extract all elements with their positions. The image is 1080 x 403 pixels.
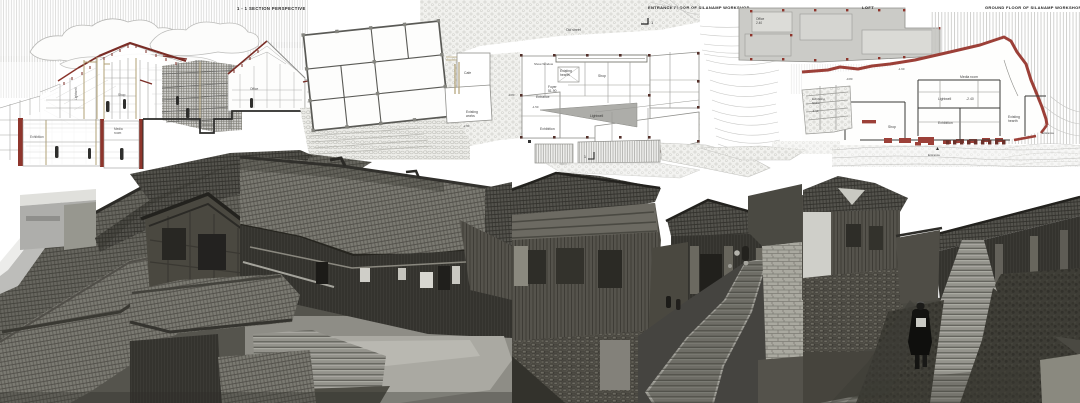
svg-text:hearth: hearth	[1008, 119, 1018, 123]
svg-text:Cafe: Cafe	[464, 71, 471, 75]
svg-text:-2.90: -2.90	[463, 124, 470, 128]
svg-text:Exhibition: Exhibition	[30, 135, 44, 139]
svg-text:1: 1	[584, 155, 586, 159]
svg-text:Entrance: Entrance	[536, 95, 550, 99]
svg-text:-1.60: -1.60	[898, 67, 905, 71]
svg-text:Lightwell: Lightwell	[590, 114, 603, 118]
svg-text:2.40: 2.40	[756, 21, 762, 25]
svg-text:Entrance: Entrance	[1042, 131, 1054, 135]
svg-text:Show Window: Show Window	[534, 62, 554, 66]
svg-text:Lightwell: Lightwell	[938, 97, 951, 101]
svg-text:Exhibition: Exhibition	[540, 127, 555, 131]
svg-text:hearth: hearth	[560, 73, 570, 77]
svg-text:1 - 1 SECTION PERSPECTIVE: 1 - 1 SECTION PERSPECTIVE	[237, 6, 306, 11]
svg-text:51.90: 51.90	[548, 89, 557, 93]
svg-text:-1.50: -1.50	[532, 105, 539, 109]
svg-text:Shop: Shop	[888, 125, 896, 129]
svg-text:Stoke: Stoke	[812, 101, 820, 105]
svg-text:GROUND FLOOR OF SILANAMP WORKS: GROUND FLOOR OF SILANAMP WORKSHOP	[985, 5, 1080, 10]
svg-text:Media room: Media room	[960, 75, 978, 79]
svg-text:-1.10: -1.10	[812, 109, 819, 113]
svg-text:Entrance: Entrance	[928, 153, 940, 157]
svg-text:room: room	[114, 131, 122, 135]
svg-text:LOFT: LOFT	[862, 5, 874, 10]
svg-text:ENTRANCE FLOOR OF SILANAMP WOR: ENTRANCE FLOOR OF SILANAMP WORKSHOP	[648, 5, 750, 10]
svg-text:Shop: Shop	[118, 93, 126, 97]
svg-text:works: works	[466, 114, 475, 118]
svg-text:Exhibition: Exhibition	[938, 121, 953, 125]
svg-text:Shop: Shop	[598, 74, 606, 78]
svg-text:Lightwell: Lightwell	[74, 87, 78, 100]
svg-text:-2.40: -2.40	[966, 97, 974, 101]
svg-text:-0.80: -0.80	[508, 93, 515, 97]
svg-text:Old street: Old street	[566, 28, 581, 32]
svg-text:Office: Office	[250, 87, 258, 91]
svg-text:-0.80: -0.80	[846, 77, 853, 81]
